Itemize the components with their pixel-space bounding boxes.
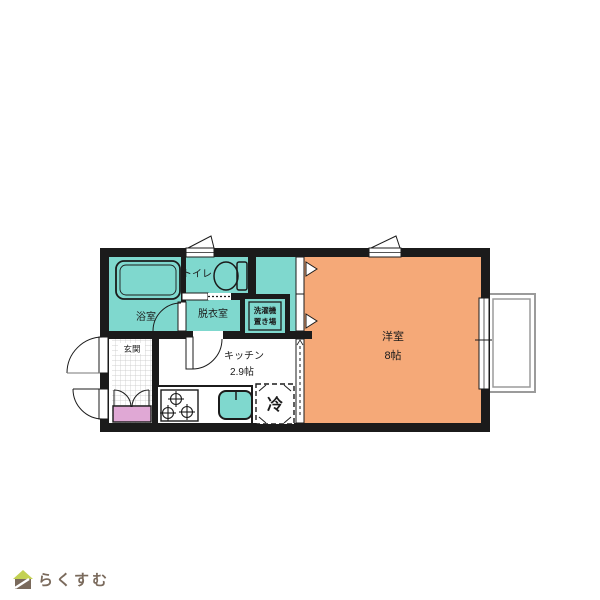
kitchen-size-label: 2.9帖 [230,365,254,378]
kitchen-sliding-door [296,339,304,423]
laundry-label-1: 洗濯機 [254,305,277,315]
entrance-label-group: 玄関 [118,343,145,354]
toilet-sliding-door [182,293,231,300]
western-room-label: 洋室 [382,329,404,343]
western-room-window-top [369,236,401,257]
sink-icon [219,390,252,419]
floorplan-drawing: 洗濯機 置き場 [0,0,600,600]
laundry-label-2: 置き場 [254,316,277,326]
site-logo: らくすむ [12,568,110,590]
entrance-door-upper [67,337,108,373]
kitchen-label: キッチン [224,350,264,362]
entrance-label: 玄関 [123,344,140,354]
refrigerator-label: 冷 [267,395,283,414]
window-swing-icon [188,236,214,248]
wall-top [100,248,490,257]
entrance-door-lower [73,389,108,419]
balcony [488,294,535,392]
floorplan-image: 洗濯機 置き場 [0,0,600,600]
laundry-space: 洗濯機 置き場 [245,299,285,333]
dressing-room-label: 脱衣室 [198,307,228,320]
toilet-window [186,236,214,257]
kitchen-counter [157,386,252,424]
refrigerator-space: 冷 [256,384,294,424]
house-icon [12,568,34,590]
western-room-size-label: 8帖 [384,349,401,362]
site-logo-text: らくすむ [38,569,110,590]
dressing-room-door [186,331,223,369]
toilet-label: トイレ [182,269,212,280]
window-swing-icon [371,236,400,248]
bathroom-label: 浴室 [136,310,156,323]
